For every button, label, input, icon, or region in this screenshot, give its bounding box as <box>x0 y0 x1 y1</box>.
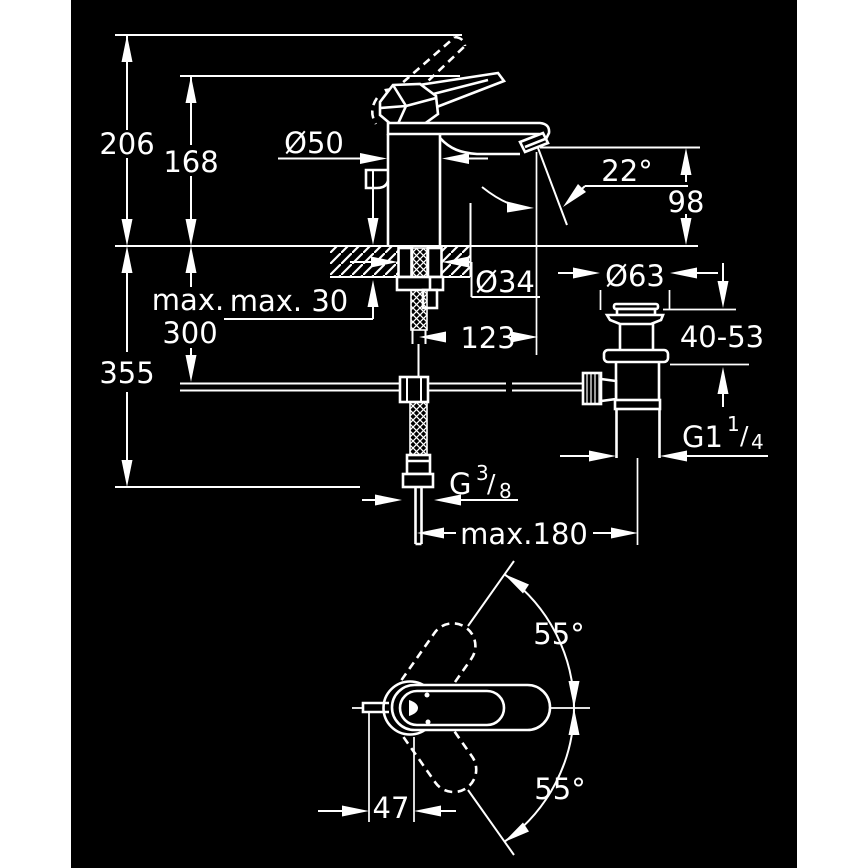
hose-fitting <box>407 455 430 474</box>
knob-connector <box>601 379 616 401</box>
braided-hose-mid <box>411 290 427 330</box>
hose-nut <box>403 474 433 487</box>
technical-drawing-page: 206 168 Ø50 22° 98 max. 300 max. 30 Ø34 … <box>0 0 868 868</box>
label-aerator-angle: 22° <box>601 154 652 188</box>
rod-cross-clamp <box>400 377 428 402</box>
mounting-flange <box>397 277 443 290</box>
label-spout-drop: 98 <box>668 185 705 219</box>
label-spout-height: 168 <box>163 145 218 179</box>
deck-hatch-right <box>442 247 470 277</box>
label-swing-lower: 55° <box>534 772 585 806</box>
label-pivot-offset: 47 <box>373 791 410 825</box>
label-hose-max-value: 300 <box>162 316 217 350</box>
rod-adjust-knob <box>583 373 601 404</box>
label-total-height: 206 <box>99 127 154 161</box>
label-clamp-range: 40-53 <box>680 320 764 354</box>
label-spout-reach: 123 <box>460 321 515 355</box>
label-hole-diameter: Ø34 <box>475 265 535 299</box>
label-reach-max: max.180 <box>460 517 588 551</box>
deck-hatch-left <box>330 247 398 277</box>
mounting-washer-left <box>399 248 413 277</box>
label-hose-max-word: max. <box>152 283 224 317</box>
handle-dot-top <box>425 693 430 698</box>
label-install-depth: 355 <box>99 356 154 390</box>
handle-dot-bottom <box>426 720 431 725</box>
waste-ring <box>604 350 668 362</box>
label-body-diameter: Ø50 <box>284 126 344 160</box>
braided-hose-lower <box>410 402 427 455</box>
label-flange-diameter: Ø63 <box>605 259 665 293</box>
mounting-washer-right <box>428 248 442 277</box>
waste-union-nut <box>615 400 660 409</box>
waste-flange <box>607 315 663 324</box>
label-swing-upper: 55° <box>533 617 584 651</box>
label-deck-thickness: max. 30 <box>230 284 349 318</box>
faucet-dimension-diagram: 206 168 Ø50 22° 98 max. 300 max. 30 Ø34 … <box>0 0 868 868</box>
braided-hose-upper <box>411 248 427 277</box>
